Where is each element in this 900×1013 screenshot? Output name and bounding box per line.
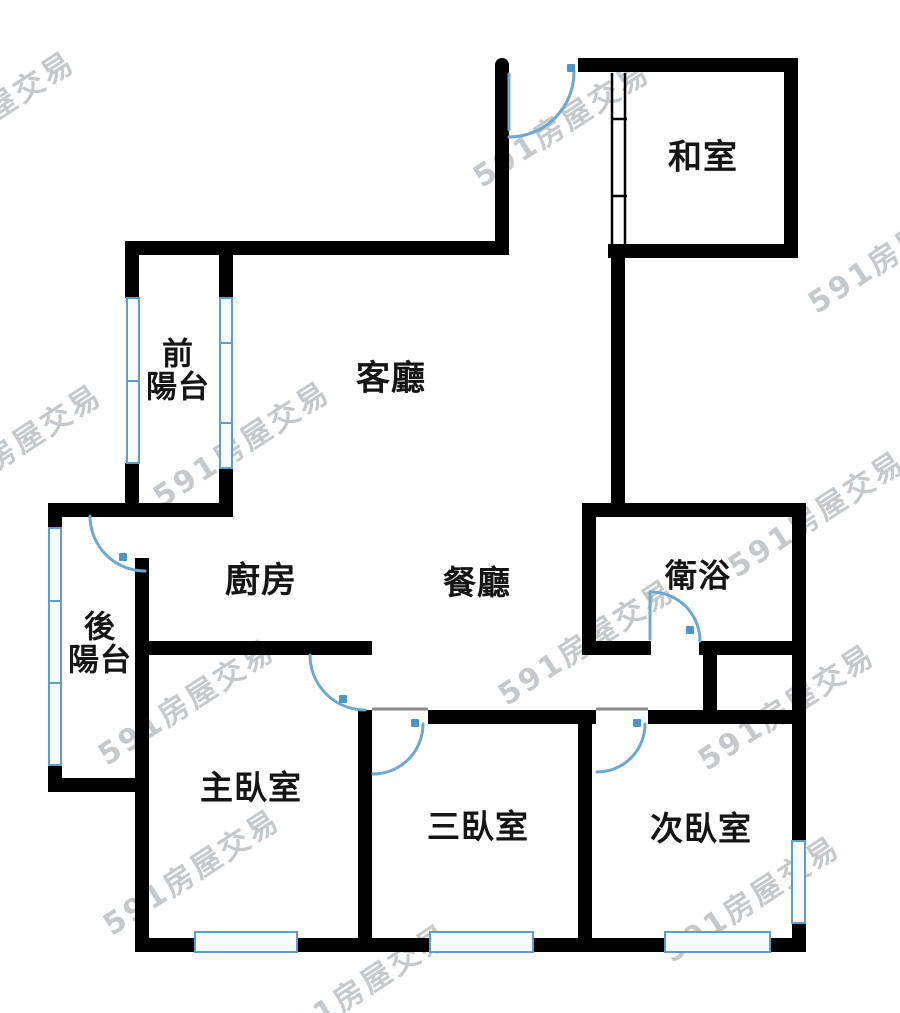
room-label-back-balcony: 後 陽台 [68, 612, 132, 679]
room-label-dining: 餐廳 [443, 565, 511, 601]
room-label-master-bedroom: 主臥室 [200, 770, 302, 806]
room-label-second-bedroom: 次臥室 [650, 811, 752, 847]
room-label-washitsu: 和室 [668, 140, 738, 177]
room-label-third-bedroom: 三臥室 [427, 809, 529, 845]
room-label-living: 客廳 [356, 361, 426, 398]
floor-plan: 591房屋交易591房屋交易591房屋交易591房屋交易591房屋交易591房屋… [0, 0, 900, 1013]
room-label-bathroom: 衛浴 [665, 559, 731, 594]
room-label-kitchen: 廚房 [225, 563, 297, 601]
room-label-front-balcony: 前 陽台 [146, 339, 210, 406]
labels-layer: 和室客廳前 陽台後 陽台廚房餐廳衛浴主臥室三臥室次臥室 [0, 0, 900, 1013]
